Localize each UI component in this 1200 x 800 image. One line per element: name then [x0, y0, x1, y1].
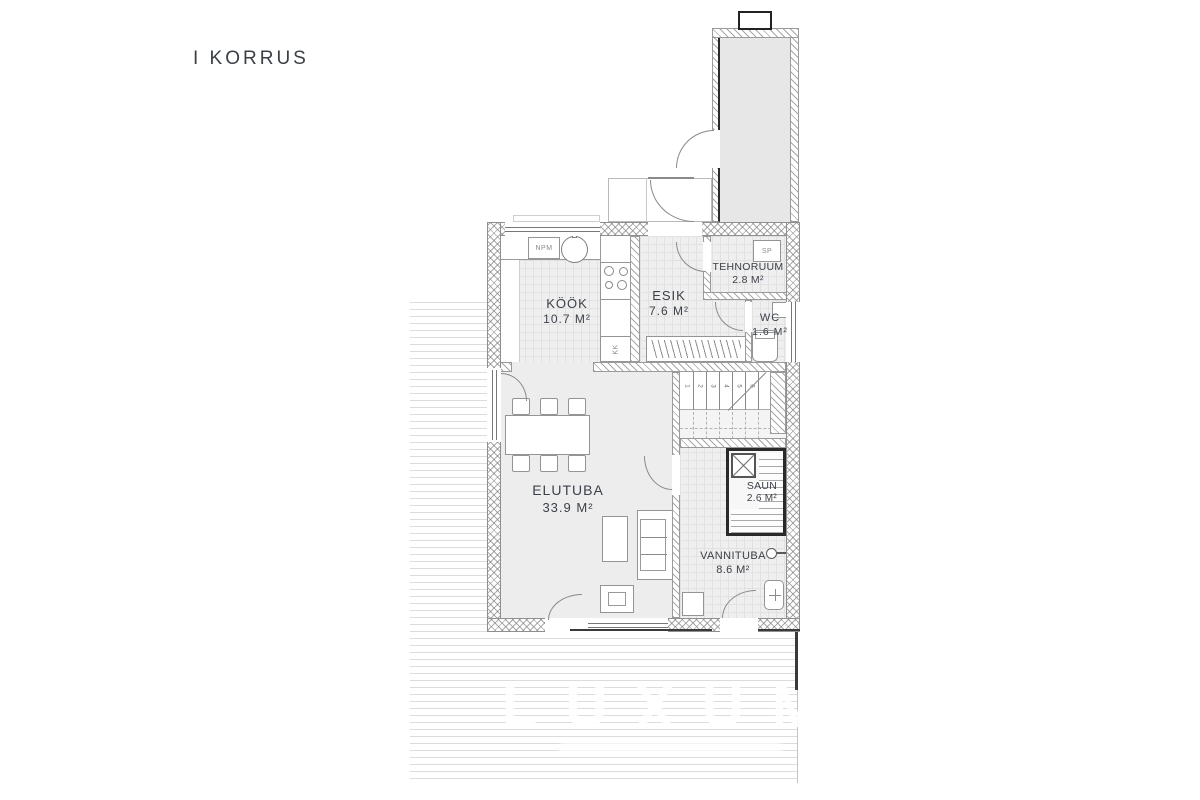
stove-burner [617, 280, 627, 290]
dining-chair [540, 398, 558, 415]
room-label-kook: KÖÖK 10.7 M² [512, 296, 622, 327]
elutuba-window-glass1 [588, 623, 668, 624]
room-label-esik: ESIK 7.6 M² [633, 288, 705, 319]
front-door-leaf [648, 177, 694, 179]
stove [600, 262, 632, 300]
chimney-box [738, 11, 772, 30]
kitchen-window-glass2 [505, 231, 600, 232]
entrance-door-gap [648, 222, 702, 236]
dishwasher-label: NPM [535, 245, 552, 252]
boiler-sp-box: SP [753, 240, 781, 262]
kitchen-window-glass1 [505, 227, 600, 228]
wall-mid-horizontal [593, 362, 786, 372]
vannituba-inner-door-gap [672, 455, 680, 495]
room-name: KÖÖK [512, 296, 622, 312]
room-label-wc: WC 1.6 M² [742, 312, 798, 339]
room-area: 8.6 M² [690, 564, 776, 578]
vannituba-door-gap [720, 618, 758, 632]
wall-vannituba-top [680, 438, 786, 448]
sink-basin [561, 236, 588, 263]
porch-door-swing [676, 130, 714, 168]
elutuba-window-glass2 [588, 627, 668, 628]
room-label-vannituba: VANNITUBA 8.6 M² [690, 550, 776, 578]
staircase: 123456 [680, 372, 770, 410]
room-area: 33.9 M² [498, 500, 638, 516]
tv-bench-inner [608, 592, 626, 606]
room-name: TEHNORUUM [707, 261, 789, 274]
stove-burner [604, 266, 614, 276]
watermark-logo: LUXUM [480, 674, 870, 741]
wall-stair-left [672, 372, 680, 618]
side-door-glass2 [496, 370, 497, 440]
porch-wall-left [712, 28, 720, 222]
side-door-glass1 [492, 370, 493, 440]
sofa [637, 510, 675, 580]
room-label-elutuba: ELUTUBA 33.9 M² [498, 482, 638, 516]
stair-number: 4 [723, 380, 729, 393]
room-area: 2.8 M² [707, 274, 789, 287]
dining-chair [568, 455, 586, 472]
dishwasher-box: NPM [528, 237, 560, 259]
sofa-cushion-line [641, 537, 667, 538]
sofa-cushion-line [641, 554, 667, 555]
watermark-tagline-blur [558, 742, 783, 755]
threshold-line-1 [570, 629, 712, 631]
washing-machine [682, 592, 704, 616]
porch-wall-right [790, 28, 799, 222]
sauna-heater [731, 453, 756, 478]
kitchen-window-gap [505, 222, 600, 236]
page-title: I KORRUS [193, 48, 309, 70]
sofa-cushions [640, 519, 666, 571]
kitchen-window-sill [513, 215, 600, 222]
porch-interior [720, 36, 790, 222]
room-name: ESIK [633, 288, 705, 304]
coffee-table [602, 516, 628, 562]
dining-table [505, 415, 590, 455]
stair-number: 3 [710, 380, 716, 393]
dining-chair [512, 455, 530, 472]
wardrobe [646, 336, 746, 362]
stair-number: 5 [736, 380, 742, 393]
room-area: 10.7 M² [512, 312, 622, 327]
room-label-tehnoruum: TEHNORUUM 2.8 M² [707, 261, 789, 287]
room-name: SAUN [736, 480, 788, 493]
room-label-saun: SAUN 2.6 M² [736, 480, 788, 506]
room-name: ELUTUBA [498, 482, 638, 500]
kitchen-kk-box: KK [600, 336, 632, 362]
terrace-left [410, 296, 487, 632]
stove-burner [619, 267, 628, 276]
bathroom-sink [764, 580, 784, 610]
room-name: VANNITUBA [690, 550, 776, 564]
room-area: 1.6 M² [742, 326, 798, 339]
dining-chair [540, 455, 558, 472]
shower-arm-icon [777, 552, 786, 554]
room-name: WC [742, 312, 798, 326]
floor-plan: I KORRUS LUXUM [0, 0, 1200, 800]
kk-label: KK [613, 344, 620, 354]
stair-number: 1 [684, 380, 690, 393]
threshold-line-2 [758, 629, 800, 631]
wall-stair-right [770, 372, 786, 434]
room-area: 7.6 M² [633, 304, 705, 319]
stove-burner [605, 281, 613, 289]
sauna-bench-bottom [731, 509, 783, 533]
sp-label: SP [762, 248, 772, 255]
elutuba-side-door-gap [487, 368, 501, 442]
entrance-pad-divider [646, 178, 647, 222]
dining-chair [568, 398, 586, 415]
stair-number: 2 [697, 380, 703, 393]
tv-bench [600, 585, 634, 613]
wardrobe-hangers [651, 340, 741, 358]
room-area: 2.6 M² [736, 493, 788, 506]
sink-cross-v [775, 589, 776, 601]
